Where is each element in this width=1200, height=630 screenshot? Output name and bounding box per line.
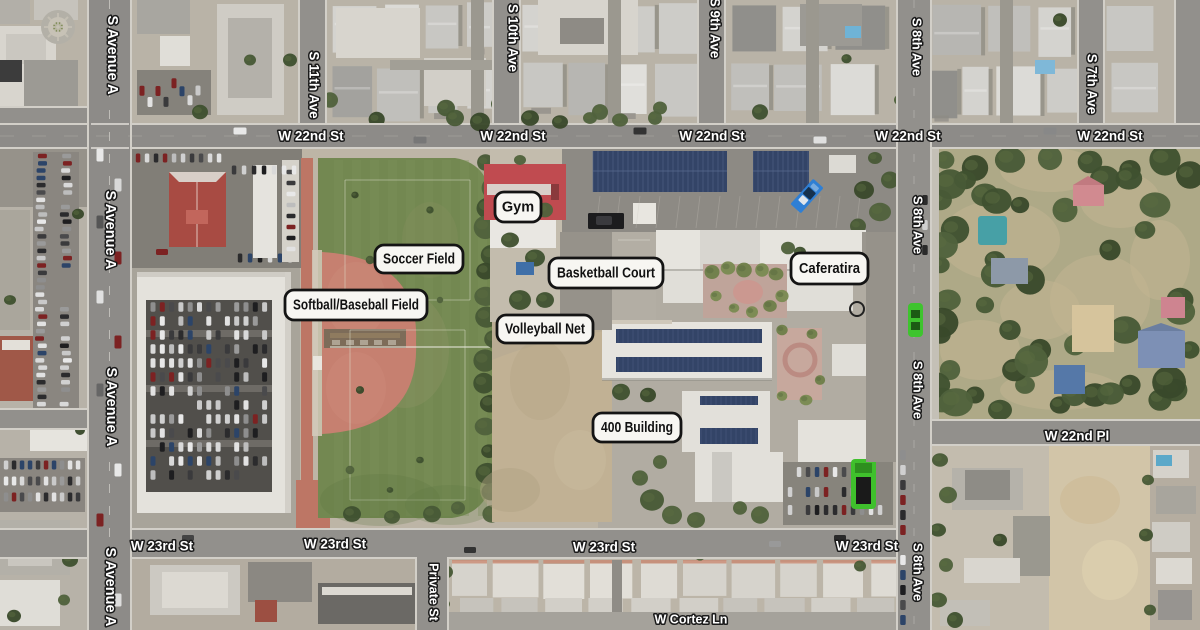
svg-text:S Avenue A: S Avenue A xyxy=(104,16,120,95)
svg-text:W 22nd St: W 22nd St xyxy=(1077,129,1143,144)
svg-text:Soccer Field: Soccer Field xyxy=(383,251,455,267)
svg-text:Volleyball Net: Volleyball Net xyxy=(505,321,585,337)
svg-text:W 23rd St: W 23rd St xyxy=(573,540,636,555)
svg-text:W 22nd St: W 22nd St xyxy=(278,129,344,144)
svg-text:Gym: Gym xyxy=(502,199,534,215)
svg-text:W 22nd St: W 22nd St xyxy=(480,129,546,144)
svg-text:Private St: Private St xyxy=(427,563,441,622)
svg-text:Caferatira: Caferatira xyxy=(799,261,861,277)
svg-text:S Avenue A: S Avenue A xyxy=(102,548,118,627)
svg-text:W 23rd St: W 23rd St xyxy=(131,539,194,554)
svg-text:S Avenue A: S Avenue A xyxy=(103,368,119,447)
svg-text:W Cortez Ln: W Cortez Ln xyxy=(655,612,728,626)
svg-text:Softball/Baseball Field: Softball/Baseball Field xyxy=(293,297,419,313)
svg-text:S 10th Ave: S 10th Ave xyxy=(505,4,520,73)
svg-text:W 22nd Pl: W 22nd Pl xyxy=(1045,429,1110,444)
svg-text:S 11th Ave: S 11th Ave xyxy=(306,51,321,119)
svg-text:S 8th Ave: S 8th Ave xyxy=(911,543,926,601)
svg-text:W 23rd St: W 23rd St xyxy=(836,539,899,554)
svg-text:S Avenue A: S Avenue A xyxy=(102,191,118,270)
svg-text:S 8th Ave: S 8th Ave xyxy=(910,18,925,76)
svg-text:W 22nd St: W 22nd St xyxy=(679,129,745,144)
svg-text:S 8th Ave: S 8th Ave xyxy=(911,361,926,419)
svg-text:W 22nd St: W 22nd St xyxy=(875,129,941,144)
svg-text:400 Building: 400 Building xyxy=(601,420,673,436)
svg-text:S 7th Ave: S 7th Ave xyxy=(1084,54,1099,115)
svg-text:Basketball Court: Basketball Court xyxy=(557,265,655,281)
svg-text:S 8th Ave: S 8th Ave xyxy=(911,196,926,254)
svg-text:W 23rd St: W 23rd St xyxy=(304,537,367,552)
svg-text:S 9th Ave: S 9th Ave xyxy=(707,0,722,59)
